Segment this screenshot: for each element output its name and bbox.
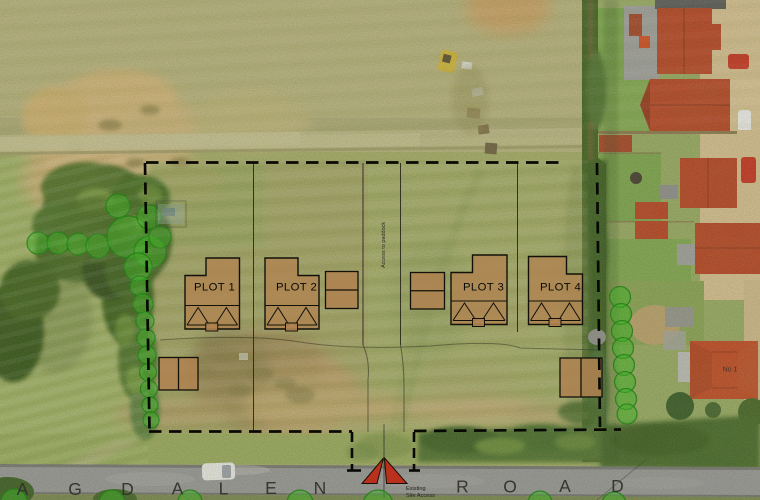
svg-text:D: D [121,479,134,499]
svg-text:Site Access: Site Access [406,493,435,499]
svg-text:O: O [503,477,517,497]
svg-text:D: D [611,476,624,496]
svg-text:A: A [17,479,29,499]
svg-text:A: A [559,476,571,496]
svg-text:Existing: Existing [406,486,426,492]
svg-text:Access to paddock: Access to paddock [381,222,387,268]
svg-text:PLOT 4: PLOT 4 [540,282,581,294]
svg-text:R: R [456,477,469,497]
svg-text:L: L [219,479,229,499]
svg-text:PLOT 1: PLOT 1 [194,282,235,294]
svg-text:PLOT 3: PLOT 3 [463,282,504,294]
svg-text:G: G [68,479,82,499]
svg-text:N: N [314,478,327,498]
svg-text:A: A [172,479,184,499]
svg-text:PLOT 2: PLOT 2 [276,282,317,294]
svg-text:E: E [265,478,277,498]
